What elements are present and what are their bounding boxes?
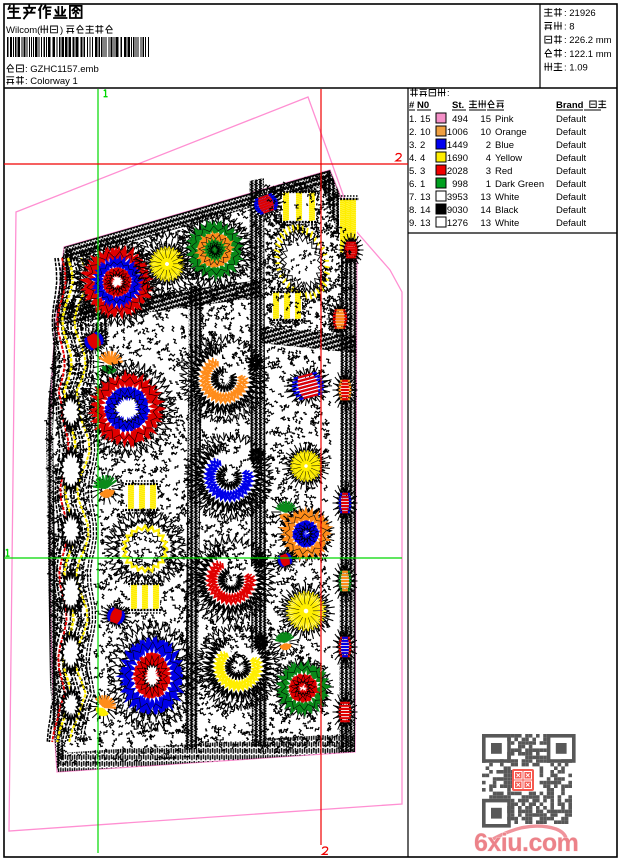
- svg-text:14: 14: [420, 205, 431, 216]
- svg-text:998: 998: [452, 179, 468, 190]
- svg-text:Default: Default: [556, 127, 586, 138]
- svg-text:14: 14: [480, 205, 491, 216]
- svg-text:6xiu.com: 6xiu.com: [474, 829, 578, 857]
- svg-text:10: 10: [480, 127, 491, 138]
- svg-text:13: 13: [480, 192, 491, 203]
- svg-text:White: White: [495, 218, 519, 229]
- svg-text:4.: 4.: [409, 153, 417, 164]
- svg-text:5.: 5.: [409, 166, 417, 177]
- svg-text:Default: Default: [556, 153, 586, 164]
- svg-text:: 122.1 mm: : 122.1 mm: [564, 49, 612, 60]
- svg-text:1449: 1449: [447, 140, 468, 151]
- svg-text:Wilcom(: Wilcom(: [6, 25, 41, 36]
- svg-text:15: 15: [480, 114, 491, 125]
- svg-text:: 21926: : 21926: [564, 8, 596, 19]
- svg-text:1006: 1006: [447, 127, 468, 138]
- svg-text:Default: Default: [556, 166, 586, 177]
- svg-text:Yellow: Yellow: [495, 153, 522, 164]
- svg-text:N0: N0: [417, 100, 429, 111]
- svg-text:3.: 3.: [409, 140, 417, 151]
- svg-text:: 226.2 mm: : 226.2 mm: [564, 35, 612, 46]
- svg-text:4: 4: [486, 153, 491, 164]
- svg-text:4: 4: [420, 153, 425, 164]
- svg-text:Default: Default: [556, 218, 586, 229]
- svg-text:: 1.09: : 1.09: [564, 62, 588, 73]
- svg-text:7.: 7.: [409, 192, 417, 203]
- svg-text::: :: [447, 88, 450, 98]
- svg-text:3: 3: [486, 166, 491, 177]
- svg-text:1276: 1276: [447, 218, 468, 229]
- svg-text:13: 13: [480, 218, 491, 229]
- svg-text:13: 13: [420, 192, 431, 203]
- svg-text:: Colorway 1: : Colorway 1: [25, 76, 78, 87]
- svg-text:1: 1: [420, 179, 425, 190]
- svg-text:10: 10: [420, 127, 431, 138]
- svg-text:Pink: Pink: [495, 114, 514, 125]
- svg-text:White: White: [495, 192, 519, 203]
- svg-text:13: 13: [420, 218, 431, 229]
- svg-text:Brand: Brand: [556, 100, 584, 111]
- svg-text:Black: Black: [495, 205, 518, 216]
- svg-text:6.: 6.: [409, 179, 417, 190]
- svg-text:Default: Default: [556, 205, 586, 216]
- svg-text:3953: 3953: [447, 192, 468, 203]
- svg-text:9.: 9.: [409, 218, 417, 229]
- svg-text:1: 1: [486, 179, 491, 190]
- svg-text:9030: 9030: [447, 205, 468, 216]
- svg-text:2: 2: [420, 140, 425, 151]
- svg-text:8.: 8.: [409, 205, 417, 216]
- svg-text:2028: 2028: [447, 166, 468, 177]
- svg-text:Default: Default: [556, 140, 586, 151]
- svg-text:494: 494: [452, 114, 468, 125]
- svg-text:Dark Green: Dark Green: [495, 179, 544, 190]
- svg-text:Default: Default: [556, 114, 586, 125]
- svg-text:2: 2: [486, 140, 491, 151]
- svg-text:): ): [60, 25, 63, 36]
- svg-text:Default: Default: [556, 192, 586, 203]
- svg-text:Red: Red: [495, 166, 512, 177]
- svg-text:1690: 1690: [447, 153, 468, 164]
- svg-text:#: #: [409, 100, 415, 111]
- svg-text:3: 3: [420, 166, 425, 177]
- svg-text:St.: St.: [452, 100, 464, 111]
- svg-text:Orange: Orange: [495, 127, 527, 138]
- svg-text:1.: 1.: [409, 114, 417, 125]
- svg-text:15: 15: [420, 114, 431, 125]
- svg-text:Blue: Blue: [495, 140, 514, 151]
- svg-text:: 8: : 8: [564, 22, 575, 33]
- svg-text:Default: Default: [556, 179, 586, 190]
- svg-text:: GZHC1157.emb: : GZHC1157.emb: [25, 64, 99, 75]
- svg-text:2.: 2.: [409, 127, 417, 138]
